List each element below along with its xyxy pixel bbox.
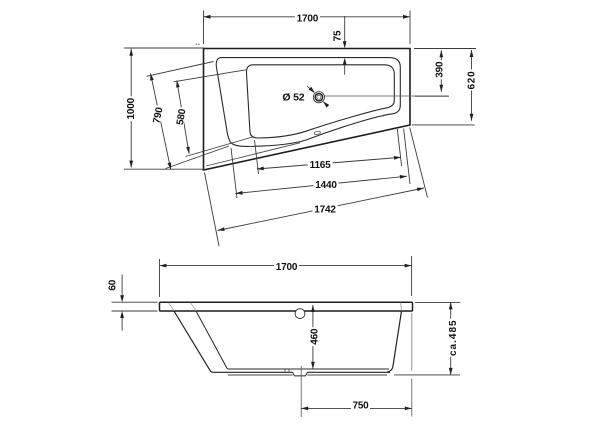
svg-text:1700: 1700 [297,14,319,25]
svg-text:460: 460 [309,328,320,345]
svg-text:ca.485: ca.485 [448,319,459,356]
svg-text:1440: 1440 [315,180,337,191]
svg-text:1000: 1000 [126,97,137,119]
svg-text:1700: 1700 [276,262,298,273]
svg-text:60: 60 [107,279,118,290]
svg-text:620: 620 [467,70,478,89]
svg-text:750: 750 [352,400,369,411]
svg-text:Ø 52: Ø 52 [282,92,304,104]
svg-text:580: 580 [175,108,189,126]
svg-text:75: 75 [332,30,343,41]
svg-text:390: 390 [435,61,446,78]
svg-text:1165: 1165 [310,160,332,171]
svg-text:1742: 1742 [314,204,336,215]
svg-text:790: 790 [151,106,165,125]
